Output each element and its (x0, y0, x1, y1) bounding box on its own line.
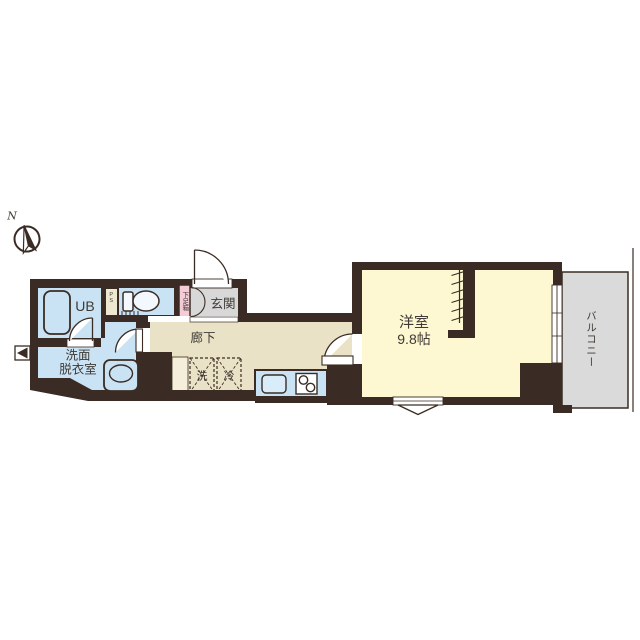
wall (327, 397, 562, 405)
bathtub-icon (44, 291, 70, 334)
floorplan-page: N UB PS 下足箱 玄関 廊下 洗面 脱衣室 洗 冷 洋室 9.8帖 バルコ… (0, 0, 640, 640)
wall (352, 262, 362, 334)
closet-partition-foot (448, 330, 475, 338)
balcony-window-icon (552, 285, 562, 363)
wall (553, 405, 572, 413)
wall (520, 363, 553, 397)
western-room-label: 洋室 9.8帖 (397, 314, 430, 348)
compass-north-label: N (7, 211, 17, 224)
washroom-label: 洗面 脱衣室 (59, 349, 97, 378)
closet-partition-wall (463, 268, 475, 330)
washer-space-label: 洗 (197, 371, 208, 384)
entrance-label: 玄関 (210, 297, 235, 311)
wall (352, 262, 562, 270)
wall (238, 313, 352, 322)
wash-basin-icon (104, 360, 138, 391)
stove-icon (296, 374, 317, 395)
corridor-label: 廊下 (190, 331, 215, 345)
wall (143, 352, 172, 392)
balcony-label: バルコニー (585, 310, 597, 368)
wall (101, 288, 105, 338)
kitchen-sink-icon (262, 375, 286, 393)
pipe-space-label: PS (108, 292, 114, 304)
washroom-label-line1: 洗面 (59, 349, 97, 363)
vent-icon (15, 346, 30, 360)
entrance-step (190, 317, 238, 322)
bay-window-icon (393, 397, 443, 415)
western-room-size: 9.8帖 (397, 331, 430, 348)
compass-icon (12, 223, 42, 255)
western-room-name: 洋室 (397, 314, 430, 331)
floorplan-drawing (0, 0, 640, 640)
entrance-door-swing-icon (192, 250, 232, 288)
kitchen-counter (255, 370, 327, 397)
shoe-box-label: 下足箱 (180, 291, 187, 311)
unit-bath-label: UB (75, 298, 94, 314)
wall (30, 279, 38, 390)
pillar (172, 357, 188, 392)
fridge-space-label: 冷 (224, 371, 235, 384)
unit-bath-door-gap (67, 339, 94, 347)
washroom-label-line2: 脱衣室 (59, 363, 97, 377)
